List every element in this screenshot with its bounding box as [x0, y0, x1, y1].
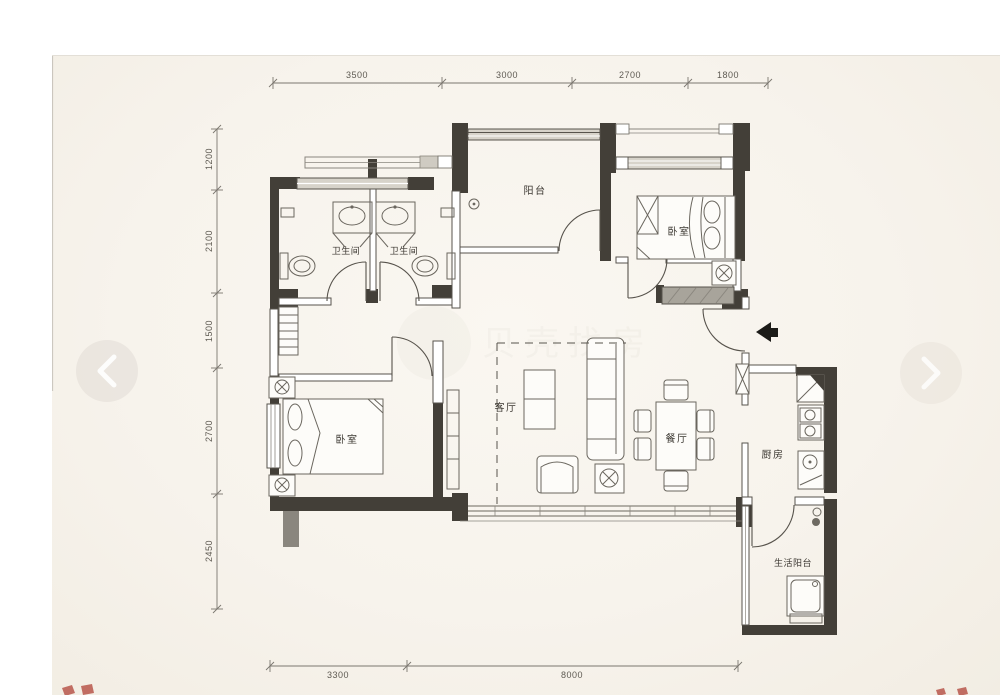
room-label-service-balcony: 生活阳台: [774, 557, 812, 568]
dim-label: 3300: [327, 670, 349, 680]
photo-viewer: { "viewer": { "page_background": "#fffff…: [0, 0, 1000, 694]
room-label-living: 客厅: [495, 401, 518, 414]
coffee-table: [524, 370, 555, 429]
floorplan-photo: 贝壳找房: [52, 55, 1000, 695]
dim-label: 2700: [619, 70, 641, 80]
stove-icon: [798, 405, 824, 440]
ac-unit-marker: [712, 261, 736, 285]
dim-label: 1500: [204, 320, 214, 342]
dim-label: 2700: [204, 420, 214, 442]
door-bathroom-right: [380, 262, 419, 301]
chevron-right-icon: [918, 354, 944, 392]
wall-stub: [283, 511, 299, 547]
hall-closet: [279, 307, 298, 355]
balcony-window: [468, 129, 600, 140]
sofa: [587, 338, 624, 460]
watermark-text: 贝壳找房: [482, 325, 654, 363]
dimension-left: 1200 2100 1500 2700 2450: [204, 125, 223, 613]
door-entrance: [703, 309, 745, 351]
balcony-drain: [469, 199, 479, 209]
door-service-balcony: [752, 505, 794, 547]
dim-label: 3000: [496, 70, 518, 80]
room-label-kitchen: 厨房: [762, 448, 785, 461]
prev-photo-button[interactable]: [76, 340, 138, 402]
dimension-top: 3500 3000 2700 1800: [269, 70, 772, 89]
dim-label: 1800: [717, 70, 739, 80]
kitchen-fixtures: [736, 364, 824, 489]
dim-label: 3500: [346, 70, 368, 80]
dimension-bottom: 3300 8000: [266, 660, 742, 680]
armchair: [537, 456, 578, 493]
door-bathroom-left: [327, 262, 366, 301]
room-label-bathroom-right: 卫生间: [390, 245, 419, 256]
tv-console: [447, 390, 459, 489]
toilets: [280, 208, 455, 279]
washing-machine-icon: [787, 576, 824, 616]
room-label-bedroom-top: 卧室: [668, 225, 691, 238]
room-label-dining: 餐厅: [666, 432, 689, 445]
room-label-balcony: 阳台: [524, 184, 547, 197]
entrance-arrow-icon: [756, 322, 778, 342]
next-photo-button[interactable]: [900, 342, 962, 404]
room-label-bathroom-left: 卫生间: [332, 245, 361, 256]
door-balcony: [559, 210, 600, 251]
bed-bottom-left: [283, 399, 383, 474]
floorplan-drawing: 贝壳找房: [52, 56, 1000, 695]
room-label-bedroom-bottom: 卧室: [336, 433, 359, 446]
red-watermark-fragments: [62, 684, 968, 695]
dim-label: 1200: [204, 148, 214, 170]
dim-label: 2450: [204, 540, 214, 562]
bedroom-bay-window: [616, 157, 733, 169]
dim-label: 8000: [561, 670, 583, 680]
dim-label: 2100: [204, 230, 214, 252]
chevron-left-icon: [94, 352, 120, 390]
entry-cabinet: [662, 287, 734, 304]
living-room-window: [460, 506, 742, 521]
side-table: [595, 464, 624, 493]
kitchen-sink-icon: [798, 451, 824, 489]
bedroom-window: [267, 404, 280, 468]
